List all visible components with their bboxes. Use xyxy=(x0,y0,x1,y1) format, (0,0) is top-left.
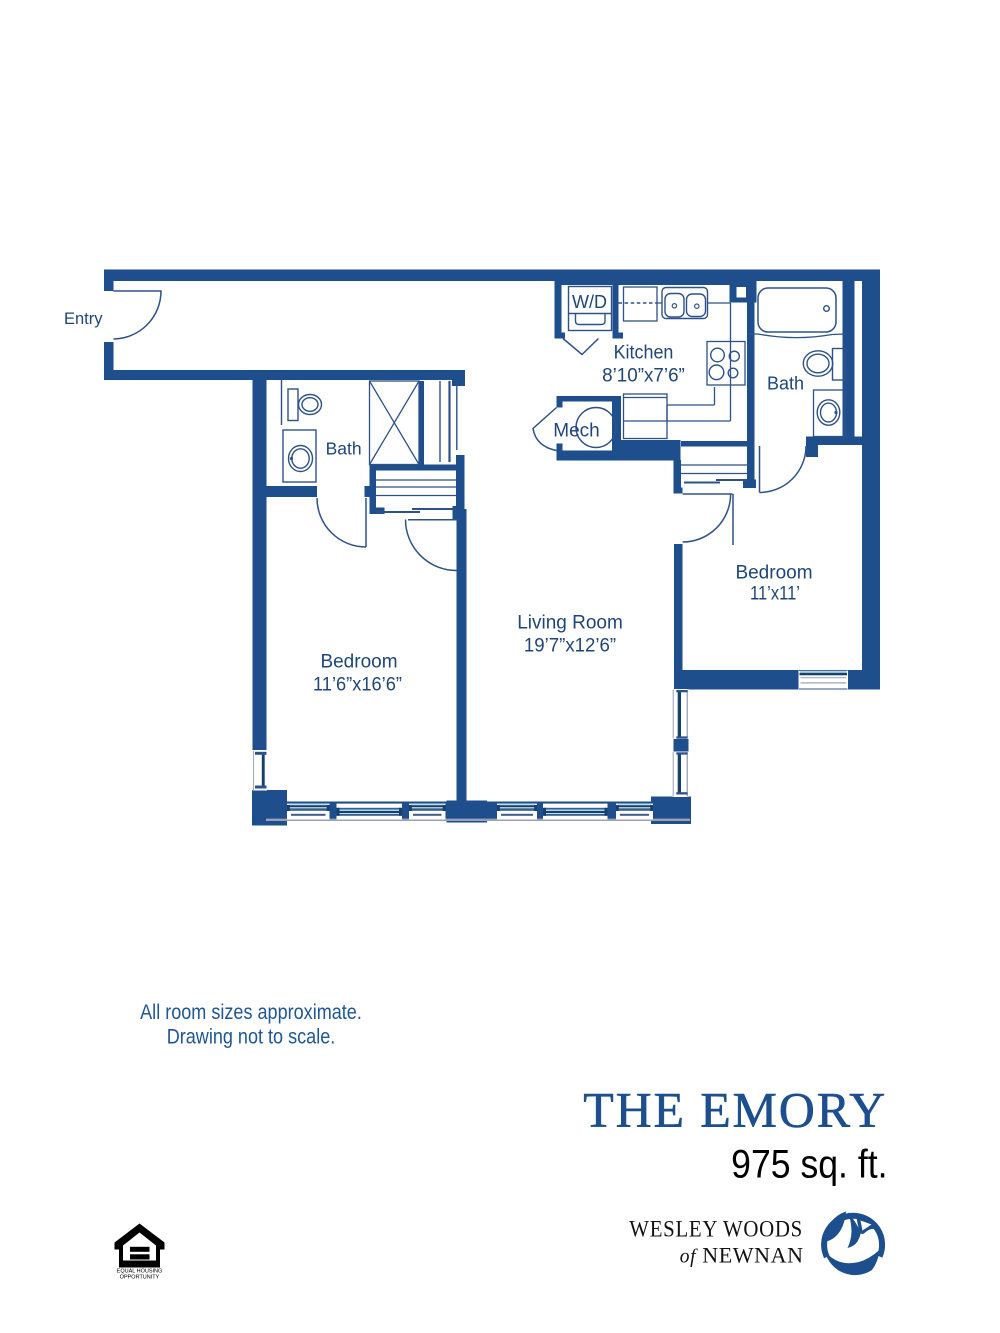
svg-text:19’7”x12’6”: 19’7”x12’6” xyxy=(524,634,616,655)
svg-text:11’x11’: 11’x11’ xyxy=(750,582,800,603)
svg-text:Mech: Mech xyxy=(553,421,599,442)
svg-text:W/D: W/D xyxy=(572,292,607,312)
svg-text:All room sizes approximate.: All room sizes approximate. xyxy=(140,1001,362,1025)
svg-text:of NEWNAN: of NEWNAN xyxy=(680,1243,804,1268)
svg-text:11’6”x16’6”: 11’6”x16’6” xyxy=(313,673,402,694)
svg-text:8’10”x7’6”: 8’10”x7’6” xyxy=(602,365,685,386)
svg-text:Entry: Entry xyxy=(64,310,103,328)
svg-text:Bath: Bath xyxy=(326,439,362,459)
svg-text:OPPORTUNITY: OPPORTUNITY xyxy=(120,1275,160,1281)
svg-text:WESLEY WOODS: WESLEY WOODS xyxy=(629,1215,803,1241)
svg-text:Bath: Bath xyxy=(767,374,804,394)
svg-text:Bedroom: Bedroom xyxy=(735,563,812,584)
svg-text:Living Room: Living Room xyxy=(517,613,623,634)
svg-text:Kitchen: Kitchen xyxy=(614,341,674,363)
svg-text:Bedroom: Bedroom xyxy=(320,652,397,673)
svg-text:975 sq. ft.: 975 sq. ft. xyxy=(731,1143,887,1187)
svg-text:Drawing not to scale.: Drawing not to scale. xyxy=(167,1025,336,1049)
svg-text:THE EMORY: THE EMORY xyxy=(583,1081,887,1137)
